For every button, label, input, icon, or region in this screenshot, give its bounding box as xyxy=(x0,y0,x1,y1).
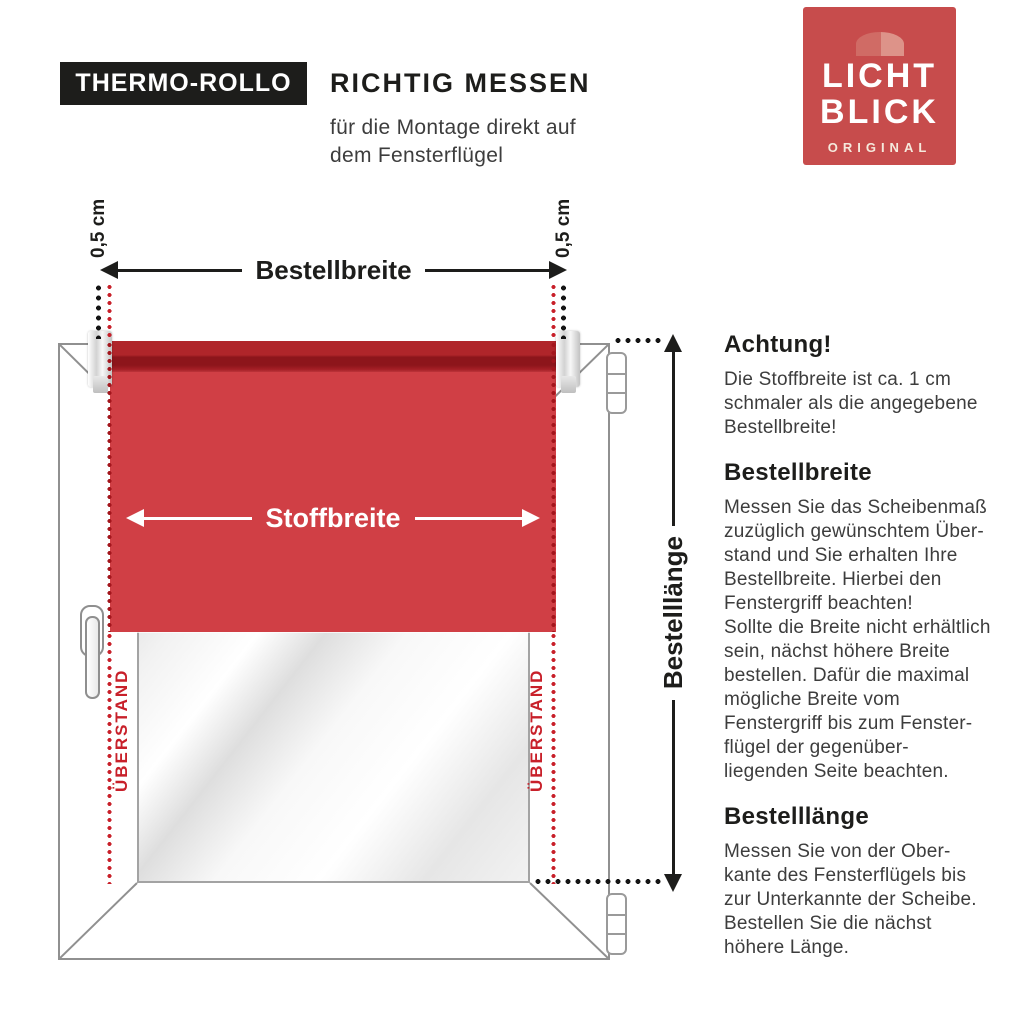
bestellbreite-label: Bestellbreite xyxy=(242,255,424,286)
guide-dots-black-left xyxy=(96,283,101,339)
stoffbreite-arrow: Stoffbreite xyxy=(126,503,540,533)
section-achtung: Achtung! Die Stoffbreite ist ca. 1 cm sc… xyxy=(724,331,1004,440)
section-bestellbreite: Bestellbreite Messen Sie das Scheibenmaß… xyxy=(724,459,1004,784)
window-hinge-bottom xyxy=(606,893,627,955)
guide-dots-red-left-top xyxy=(107,283,112,341)
offset-label-right: 0,5 cm xyxy=(551,196,577,260)
window-hinge-top xyxy=(606,352,627,414)
ueberstand-label-right: ÜBERSTAND xyxy=(526,655,548,805)
mounting-bracket-right-foot xyxy=(561,376,576,393)
brand-logo: LICHT BLICK ORIGINAL xyxy=(803,7,956,165)
arrow-down-icon xyxy=(664,874,682,892)
mounting-bracket-left-foot xyxy=(93,376,108,393)
bestelllaenge-label: Bestelllänge xyxy=(658,526,689,699)
instruction-column: Achtung! Die Stoffbreite ist ca. 1 cm sc… xyxy=(724,331,1004,979)
section-text: Messen Sie das Scheibenmaß zuzüglich gew… xyxy=(724,496,1004,784)
section-bestelllaenge: Bestelllänge Messen Sie von der Ober- ka… xyxy=(724,803,1004,960)
section-heading: Bestellbreite xyxy=(724,459,1004,487)
guide-dots-bottom xyxy=(533,879,663,884)
arrow-left-icon xyxy=(126,509,144,527)
bestelllaenge-arrow: Bestelllänge xyxy=(655,334,691,892)
logo-word-2: BLICK xyxy=(803,95,956,129)
page-title: RICHTIG MESSEN xyxy=(330,68,591,99)
guide-dots-black-right xyxy=(561,283,566,339)
arrow-up-icon xyxy=(664,334,682,352)
stoffbreite-label: Stoffbreite xyxy=(252,503,415,534)
awning-icon xyxy=(856,32,904,56)
infographic-canvas: THERMO-ROLLO RICHTIG MESSEN für die Mont… xyxy=(0,0,1024,1024)
ueberstand-label-left: ÜBERSTAND xyxy=(111,655,133,805)
section-text: Die Stoffbreite ist ca. 1 cm schmaler al… xyxy=(724,368,1004,440)
guide-dots-red-left-on-fabric xyxy=(107,341,112,632)
product-label: THERMO-ROLLO xyxy=(75,69,291,98)
arrow-right-icon xyxy=(522,509,540,527)
bestellbreite-arrow: Bestellbreite xyxy=(100,256,567,284)
window-handle-grip xyxy=(85,616,100,699)
section-heading: Achtung! xyxy=(724,331,1004,359)
section-heading: Bestelllänge xyxy=(724,803,1004,831)
arrow-left-icon xyxy=(100,261,118,279)
section-text: Messen Sie von der Ober- kante des Fenst… xyxy=(724,840,1004,960)
roller-tube xyxy=(110,341,556,372)
guide-dots-red-right-top xyxy=(551,283,556,341)
offset-label-left: 0,5 cm xyxy=(86,196,112,260)
guide-dots-red-right-bottom xyxy=(551,632,556,884)
product-label-box: THERMO-ROLLO xyxy=(60,62,307,105)
logo-word-1: LICHT xyxy=(803,59,956,93)
arrow-right-icon xyxy=(549,261,567,279)
page-subtitle: für die Montage direkt auf dem Fensterfl… xyxy=(330,114,576,170)
guide-dots-red-right-on-fabric xyxy=(551,341,556,632)
logo-subline: ORIGINAL xyxy=(803,140,956,155)
